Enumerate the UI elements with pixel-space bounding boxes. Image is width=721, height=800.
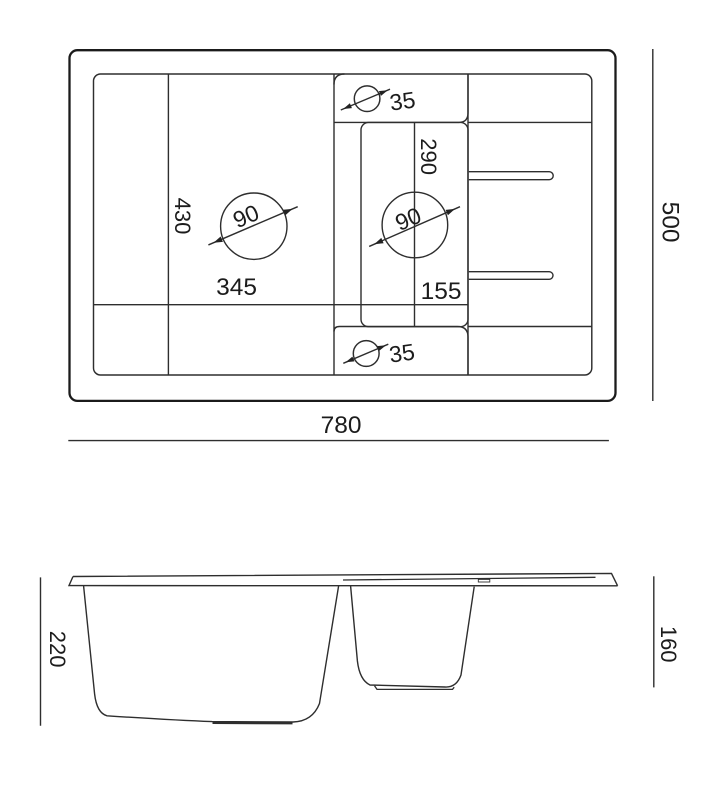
svg-text:780: 780 [321, 412, 362, 439]
svg-text:290: 290 [416, 138, 441, 175]
svg-text:90: 90 [391, 202, 425, 236]
svg-text:500: 500 [657, 202, 684, 243]
svg-text:35: 35 [387, 338, 416, 367]
svg-text:345: 345 [216, 274, 257, 301]
svg-text:35: 35 [388, 86, 417, 115]
svg-text:90: 90 [229, 199, 263, 233]
svg-text:430: 430 [170, 198, 195, 235]
svg-text:220: 220 [45, 631, 70, 668]
svg-text:155: 155 [421, 278, 462, 305]
svg-text:160: 160 [656, 626, 681, 663]
